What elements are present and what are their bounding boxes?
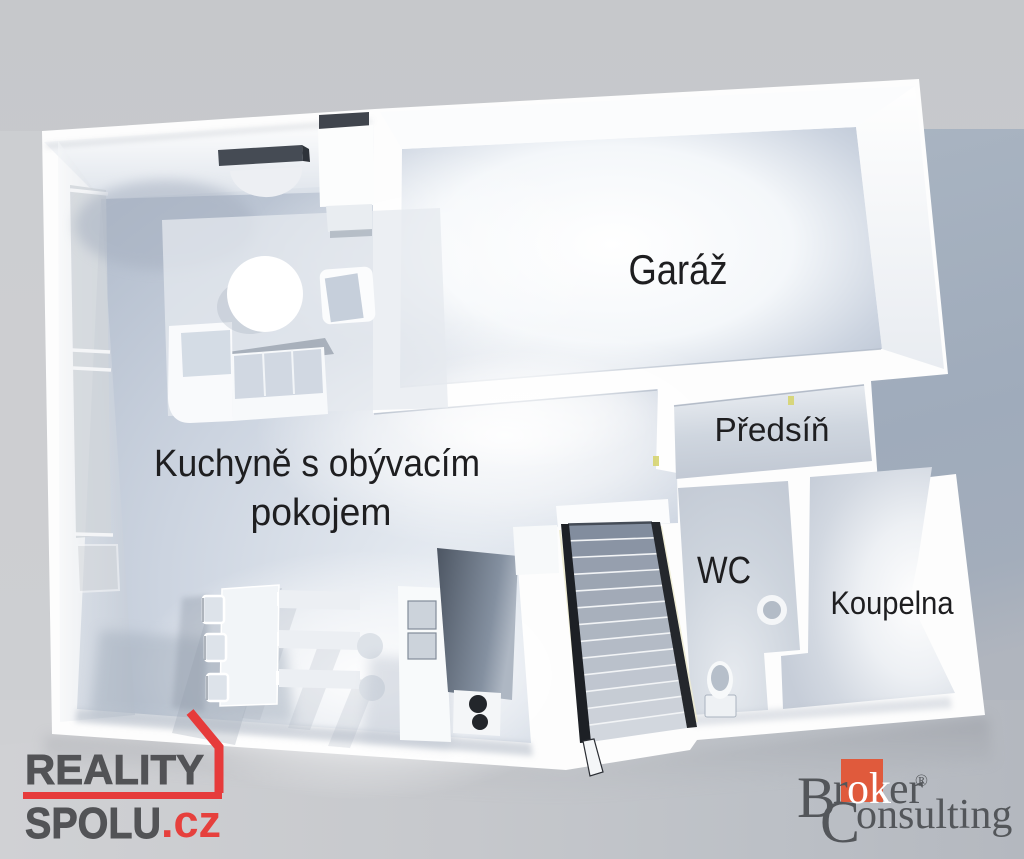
svg-text:C: C [820, 789, 860, 855]
svg-text:Garáž: Garáž [629, 246, 728, 293]
svg-text:Kuchyně s obývacím: Kuchyně s obývacím [154, 443, 480, 485]
svg-text:SPOLU: SPOLU [25, 799, 161, 848]
svg-text:pokojem: pokojem [251, 492, 392, 534]
svg-text:onsulting: onsulting [856, 792, 1012, 838]
svg-text:.cz: .cz [161, 796, 221, 847]
svg-text:Předsíň: Předsíň [715, 411, 830, 448]
svg-text:Koupelna: Koupelna [831, 585, 954, 621]
svg-text:®: ® [915, 771, 928, 790]
svg-text:WC: WC [697, 550, 751, 592]
svg-text:REALITY: REALITY [25, 746, 204, 793]
